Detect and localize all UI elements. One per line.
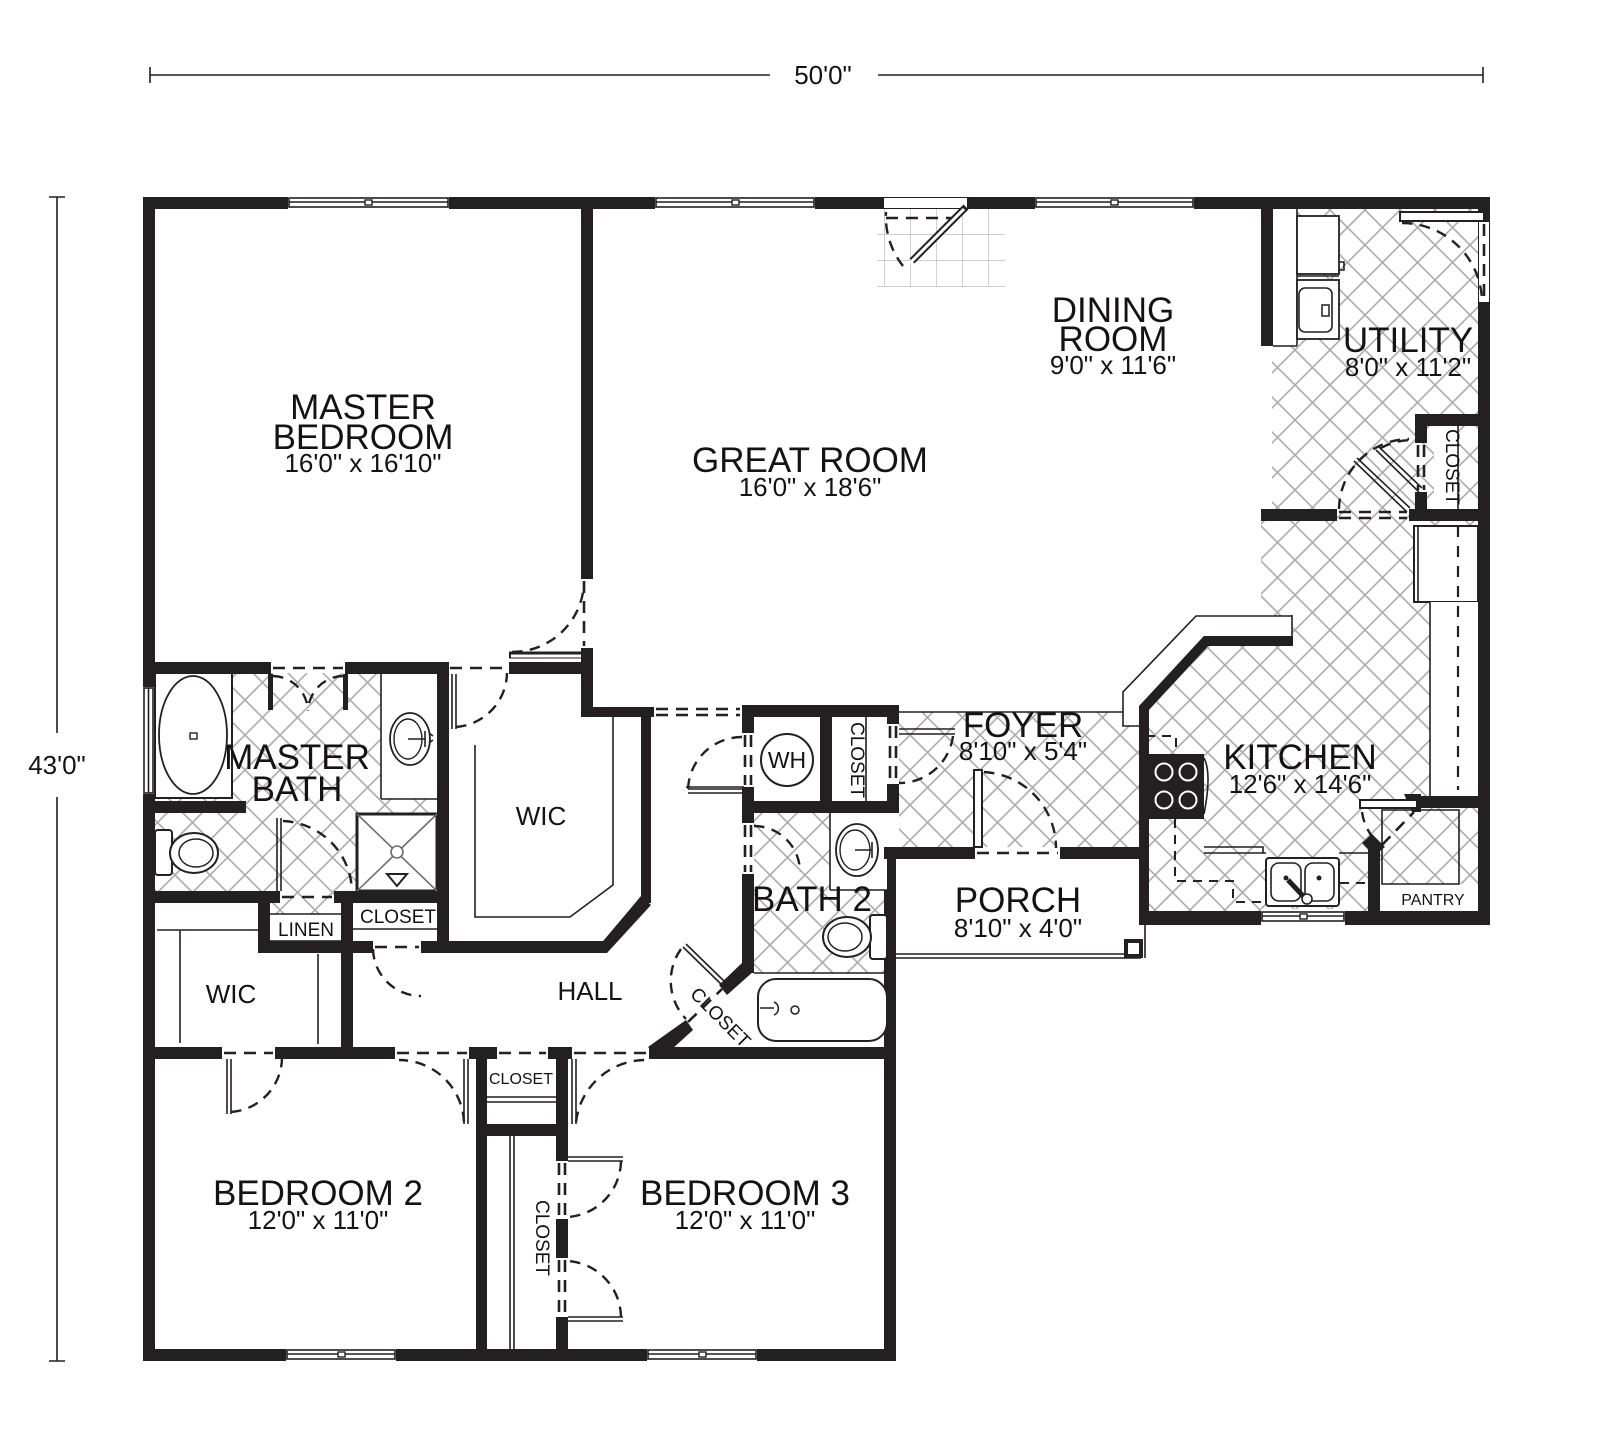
- svg-text:8'10" x 4'0": 8'10" x 4'0": [954, 913, 1082, 943]
- svg-text:CLOSET: CLOSET: [360, 907, 436, 928]
- svg-text:CLOSET: CLOSET: [489, 1071, 553, 1088]
- svg-text:8'0" x 11'2": 8'0" x 11'2": [1345, 352, 1471, 382]
- svg-text:BATH 2: BATH 2: [752, 880, 872, 919]
- svg-text:12'0" x 11'0": 12'0" x 11'0": [248, 1205, 389, 1235]
- svg-text:9'0" x 11'6": 9'0" x 11'6": [1050, 350, 1176, 380]
- svg-text:CLOSET: CLOSET: [846, 722, 867, 798]
- svg-text:43'0": 43'0": [28, 750, 86, 780]
- svg-text:HALL: HALL: [557, 976, 622, 1006]
- svg-text:12'6" x 14'6": 12'6" x 14'6": [1229, 769, 1372, 799]
- svg-text:50'0": 50'0": [794, 60, 852, 90]
- svg-text:WH: WH: [768, 747, 806, 773]
- svg-text:16'0" x 18'6": 16'0" x 18'6": [739, 472, 882, 502]
- svg-text:CLOSET: CLOSET: [531, 1200, 552, 1276]
- svg-text:PANTRY: PANTRY: [1401, 892, 1465, 909]
- svg-text:16'0" x 16'10": 16'0" x 16'10": [284, 448, 441, 478]
- svg-text:WIC: WIC: [206, 979, 257, 1009]
- svg-text:8'10" x 5'4": 8'10" x 5'4": [959, 736, 1087, 766]
- svg-text:CLOSET: CLOSET: [1441, 429, 1462, 505]
- svg-text:LINEN: LINEN: [278, 920, 334, 941]
- svg-text:BATH: BATH: [252, 770, 343, 809]
- svg-text:12'0" x 11'0": 12'0" x 11'0": [675, 1205, 816, 1235]
- svg-text:WIC: WIC: [516, 801, 567, 831]
